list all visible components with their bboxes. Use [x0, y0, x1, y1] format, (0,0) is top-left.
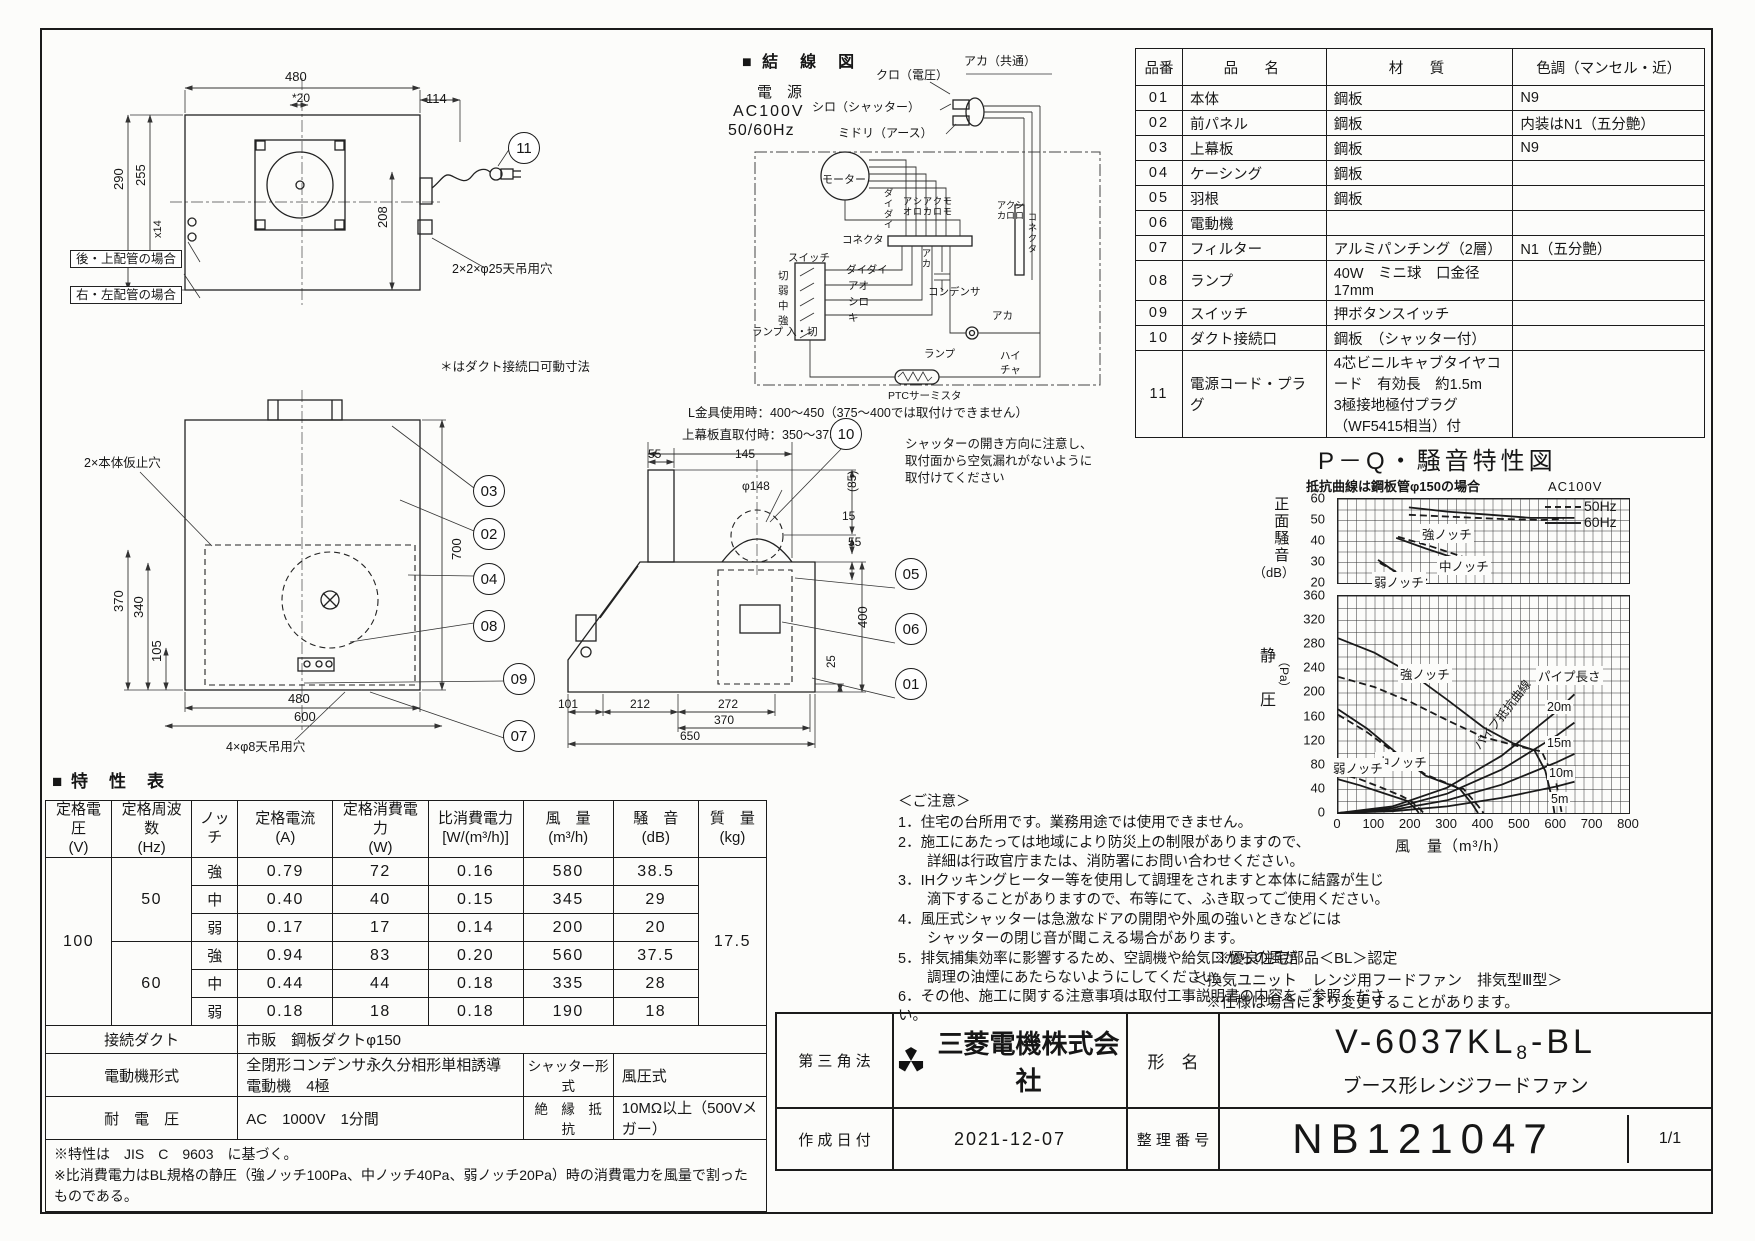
ann-pipe-length: パイプ長さ: [1536, 666, 1603, 685]
part-color: [1513, 161, 1705, 186]
part-no: 09: [1136, 301, 1183, 326]
parts-row: 09 スイッチ 押ボタンスイッチ: [1136, 301, 1705, 326]
dim-340: 340: [132, 596, 147, 618]
withstand-value: AC 1000V 1分間: [238, 1097, 523, 1140]
pq-plot: [1337, 595, 1630, 814]
parts-row: 06 電動機: [1136, 211, 1705, 236]
title-block: 第 三 角 法 三菱電機株式会社 形 名 V-6037KL8-BL ブース形レン…: [775, 1012, 1713, 1171]
callout-09: 09: [503, 663, 535, 695]
dim-114: 114: [426, 92, 447, 107]
spec-h-notch: ノッチ: [192, 801, 238, 858]
spec-cell: 83: [333, 942, 428, 970]
part-material: 鋼板: [1326, 136, 1513, 161]
model-suffix: -BL: [1531, 1023, 1596, 1061]
spec-h-voltage: 定格電圧 (V): [46, 801, 112, 858]
duct-value: 市販 鋼板ダクトφ150: [238, 1026, 767, 1054]
dim-85: (85): [846, 471, 860, 492]
dim-400: 400: [856, 606, 871, 628]
wire-ao-label: アオ: [848, 278, 869, 293]
part-name: ケーシング: [1182, 161, 1326, 186]
dim-25: 25: [826, 655, 839, 668]
wire-kuro-label: クロ（電圧）: [876, 66, 948, 83]
note-item: 2．施工にあたっては地域により防災上の制限がありますので、 詳細は行政官庁または…: [898, 834, 1398, 872]
part-no: 10: [1136, 326, 1183, 351]
part-material: 押ボタンスイッチ: [1326, 301, 1513, 326]
duct-label: 接続ダクト: [46, 1026, 238, 1054]
y-tick: 60: [1311, 491, 1325, 506]
parts-row: 01 本体 鋼板 N9: [1136, 86, 1705, 111]
wire-pair-shiro: シロ: [911, 196, 921, 217]
pq-y-ticks: 36032028024020016012080400: [1288, 595, 1329, 812]
wire-ki-label: キ: [848, 310, 859, 325]
callout-01: 01: [895, 668, 927, 700]
spec-cell: 0.15: [428, 886, 523, 914]
chart-title: P－Q・騒音特性図: [1318, 448, 1557, 476]
dim-480-front: 480: [288, 692, 310, 707]
spec-cell: 0.17: [238, 914, 333, 942]
x-tick: 800: [1617, 816, 1639, 831]
spec-footnotes: ※特性は JIS C 9603 に基づく。 ※比消費電力はBL規格の静圧（強ノッ…: [46, 1140, 767, 1212]
spec-cell: 0.94: [238, 942, 333, 970]
insulation-value: 10MΩ以上（500Vメガー）: [613, 1097, 766, 1140]
spec-cell: 弱: [192, 914, 238, 942]
label-rear-top-piping: 後・上配管の場合: [70, 250, 182, 268]
part-no: 11: [1136, 351, 1183, 438]
spec-voltage: 100: [46, 858, 112, 1026]
wire-aka-common-label: アカ（共通）: [964, 52, 1036, 69]
parts-row: 10 ダクト接続口 鋼板 （シャッター付）: [1136, 326, 1705, 351]
date-value: 2021-12-07: [893, 1108, 1127, 1170]
wire-aka-right: アカ: [992, 308, 1013, 323]
lamp-label: ランプ: [924, 346, 955, 361]
withstand-label: 耐 電 圧: [46, 1097, 238, 1140]
x-tick: 700: [1581, 816, 1603, 831]
part-material: 鋼板: [1326, 161, 1513, 186]
bl-line2: ＜換気ユニット レンジ用フードファン 排気型Ⅲ型＞: [1192, 970, 1672, 992]
pressure-axis-label-1: 静: [1260, 648, 1276, 666]
dim-55-top: 55: [648, 448, 661, 462]
spec-footnotes-row: ※特性は JIS C 9603 に基づく。 ※比消費電力はBL規格の静圧（強ノッ…: [46, 1140, 767, 1212]
pressure-axis-label-2: 圧: [1260, 692, 1276, 710]
spec-table-title: ■ 特 性 表: [52, 772, 166, 792]
company-cell: 三菱電機株式会社: [893, 1013, 1127, 1108]
condenser-label: コンデンサ: [928, 284, 981, 299]
spec-cell: 72: [333, 858, 428, 886]
dim-600: 600: [294, 710, 316, 725]
motor-type-label: 電動機形式: [46, 1054, 238, 1097]
part-no: 03: [1136, 136, 1183, 161]
drawing-sheet: 480 *20 114 290 255 x14 208 後・上配管の場合 右・左…: [0, 0, 1755, 1241]
x-tick: 200: [1399, 816, 1421, 831]
y-tick: 80: [1311, 756, 1325, 771]
part-name: 本体: [1182, 86, 1326, 111]
spec-cell: 37.5: [613, 942, 698, 970]
parts-col-color: 色調（マンセル・近）: [1513, 49, 1705, 86]
wire-aka-vertical: アカ: [920, 248, 930, 269]
note-item: 3．IHクッキングヒーター等を使用して調理をされますと本体に結露が生じ 滴下する…: [898, 872, 1398, 910]
callout-06: 06: [895, 613, 927, 645]
spec-cell: 580: [523, 858, 613, 886]
spec-withstand-row: 耐 電 圧 AC 1000V 1分間 絶 縁 抵 抗 10MΩ以上（500Vメガ…: [46, 1097, 767, 1140]
y-tick: 40: [1311, 533, 1325, 548]
page-number: 1/1: [1629, 1115, 1711, 1163]
spec-cell: 0.18: [238, 998, 333, 1026]
spec-h-mass: 質 量 (kg): [698, 801, 766, 858]
ann-strong-notch-noise: 強ノッチ: [1420, 524, 1474, 543]
wire-hai: ハイ: [1000, 348, 1021, 363]
model-cell: V-6037KL8-BL ブース形レンジフードファン: [1219, 1013, 1712, 1108]
part-color: [1513, 351, 1705, 438]
label-right-left-piping: 右・左配管の場合: [70, 286, 182, 304]
dim-212: 212: [630, 698, 650, 712]
wire-shiro-label: シロ: [848, 294, 869, 309]
spec-row: 100 50 強 0.79 72 0.16 580 38.5 17.5: [46, 858, 767, 886]
dim-101: 101: [558, 698, 578, 712]
part-material: 4芯ビニルキャブタイヤコード 有効長 約1.5m 3極接地極付プラグ（WF541…: [1326, 351, 1513, 438]
model-description: ブース形レンジフードファン: [1221, 1071, 1710, 1098]
spec-cell: 335: [523, 970, 613, 998]
x-tick: 500: [1508, 816, 1530, 831]
y-tick: 240: [1303, 660, 1325, 675]
dim-105: 105: [150, 640, 165, 662]
spec-h-noise: 騒 音 (dB): [613, 801, 698, 858]
parts-row: 04 ケーシング 鋼板: [1136, 161, 1705, 186]
spec-cell: 345: [523, 886, 613, 914]
model-prefix: V-6037KL: [1335, 1023, 1516, 1061]
dim-x14: x14: [152, 220, 165, 238]
model-label: 形 名: [1127, 1013, 1219, 1108]
part-no: 08: [1136, 261, 1183, 301]
part-color: [1513, 261, 1705, 301]
spec-cell: 40: [333, 886, 428, 914]
wire-cha: チャ: [1000, 362, 1021, 377]
spec-cell: 中: [192, 970, 238, 998]
callout-07: 07: [503, 720, 535, 752]
part-no: 07: [1136, 236, 1183, 261]
wire-pair-kuro: クロ: [931, 196, 941, 217]
spec-row: 60 強 0.94 83 0.20 560 37.5: [46, 942, 767, 970]
part-name: 羽根: [1182, 186, 1326, 211]
noise-axis-label: 正面騒音: [1272, 496, 1289, 564]
spec-cell: 中: [192, 886, 238, 914]
dim-55-right: 55: [848, 536, 861, 550]
spec-cell: 0.44: [238, 970, 333, 998]
y-tick: 360: [1303, 588, 1325, 603]
spec-cell: 強: [192, 942, 238, 970]
wire-daidai-label: ダイダイ: [846, 262, 888, 277]
dim-208: 208: [376, 206, 391, 228]
spec-cell: 0.14: [428, 914, 523, 942]
callout-04: 04: [473, 563, 505, 595]
views-linework: [40, 30, 1140, 775]
part-material: 鋼板 （シャッター付）: [1326, 326, 1513, 351]
spec-cell: 0.40: [238, 886, 333, 914]
chart-subnote: 抵抗曲線は鋼板管φ150の場合: [1306, 480, 1480, 495]
spec-mass: 17.5: [698, 858, 766, 1026]
switch-label: スイッチ: [788, 250, 830, 265]
x-tick: 400: [1472, 816, 1494, 831]
parts-row: 08 ランプ 40W ミニ球 口金径17mm: [1136, 261, 1705, 301]
note-shutter: シャッターの開き方向に注意し、 取付面から空気漏れがないように 取付けてください: [905, 436, 1093, 487]
spec-table: 定格電圧 (V) 定格周波数 (Hz) ノッチ 定格電流 (A) 定格消費電力 …: [45, 800, 767, 1212]
spec-cell: 190: [523, 998, 613, 1026]
callout-08: 08: [473, 610, 505, 642]
part-color: 内装はN1（五分艶）: [1513, 111, 1705, 136]
ann-pipe-5m: 5m: [1549, 792, 1570, 806]
label-ceiling-holes-front: 4×φ8天吊用穴: [226, 740, 305, 754]
spec-h-freq: 定格周波数 (Hz): [112, 801, 192, 858]
spec-cell: 28: [613, 970, 698, 998]
y-tick: 30: [1311, 554, 1325, 569]
spec-cell: 弱: [192, 998, 238, 1026]
parts-col-no: 品番: [1136, 49, 1183, 86]
part-no: 06: [1136, 211, 1183, 236]
dim-700: 700: [450, 538, 465, 560]
spec-cell: 200: [523, 914, 613, 942]
ann-weak-notch-pq: 弱ノッチ: [1331, 758, 1385, 777]
part-material: アルミパンチング（2層）: [1326, 236, 1513, 261]
wire-daidai-vertical: ダイダイ: [882, 188, 892, 230]
model-sub: 8: [1516, 1043, 1531, 1064]
date-label: 作 成 日 付: [776, 1108, 893, 1170]
spec-cell: 38.5: [613, 858, 698, 886]
part-color: [1513, 186, 1705, 211]
chart-voltage: AC100V: [1548, 480, 1602, 495]
serial-number: NB121047: [1220, 1115, 1629, 1163]
dim-370-front: 370: [112, 590, 127, 612]
part-name: 上幕板: [1182, 136, 1326, 161]
y-tick: 50: [1311, 512, 1325, 527]
dim-272: 272: [718, 698, 738, 712]
x-tick: 300: [1435, 816, 1457, 831]
y-tick: 320: [1303, 612, 1325, 627]
legend-solid-sample: [1545, 522, 1581, 524]
x-tick: 600: [1544, 816, 1566, 831]
spec-cell: 0.18: [428, 998, 523, 1026]
note-l-bracket: L金具使用時：400～450（375～400では取付けできません）: [688, 406, 1028, 420]
callout-03: 03: [473, 475, 505, 507]
wiring-power: 電 源: [757, 84, 802, 101]
wire-midori-label: ミドリ（アース）: [838, 124, 933, 141]
spec-cell: 29: [613, 886, 698, 914]
note-duct-movable: ＊はダクト接続口可動寸法: [440, 360, 590, 374]
flow-axis-label: 風 量（m³/h）: [1395, 838, 1509, 855]
wiring-title: ■ 結 線 図: [742, 54, 857, 72]
spec-cell: 18: [613, 998, 698, 1026]
callout-10: 10: [830, 418, 862, 450]
part-material: [1326, 211, 1513, 236]
front-view: [124, 390, 504, 740]
part-color: [1513, 326, 1705, 351]
callout-02: 02: [473, 518, 505, 550]
spec-freq-50: 50: [112, 858, 192, 942]
label-tack-holes: 2×本体仮止穴: [84, 456, 161, 470]
ann-weak-notch-noise: 弱ノッチ: [1372, 572, 1426, 591]
dim-star20: *20: [292, 92, 310, 106]
part-no: 05: [1136, 186, 1183, 211]
note-top-panel: 上幕板直取付時：350～375: [682, 428, 836, 442]
spec-cell: 18: [333, 998, 428, 1026]
spec-cell: 44: [333, 970, 428, 998]
part-color: N9: [1513, 86, 1705, 111]
part-material: 40W ミニ球 口金径17mm: [1326, 261, 1513, 301]
serial-cell: NB121047 1/1: [1219, 1108, 1712, 1170]
part-name: 電動機: [1182, 211, 1326, 236]
legend-50hz: 50Hz: [1545, 498, 1617, 514]
noise-y-ticks: 6050403020: [1295, 498, 1329, 582]
dim-480-top: 480: [285, 70, 307, 85]
dim-15: 15: [842, 510, 855, 524]
serial-label: 整 理 番 号: [1127, 1108, 1219, 1170]
parts-row: 03 上幕板 鋼板 N9: [1136, 136, 1705, 161]
insulation-label: 絶 縁 抵 抗: [523, 1097, 613, 1140]
y-tick: 120: [1303, 732, 1325, 747]
parts-table: 品番 品 名 材 質 色調（マンセル・近） 01 本体 鋼板 N9 02 前パネ…: [1135, 48, 1705, 438]
spec-cell: 560: [523, 942, 613, 970]
part-name: ランプ: [1182, 261, 1326, 301]
spec-cell: 0.20: [428, 942, 523, 970]
lamp-switch-label: ランプ 入・切: [752, 326, 818, 340]
part-material: 鋼板: [1326, 111, 1513, 136]
shutter-type-value: 風圧式: [613, 1054, 766, 1097]
part-color: [1513, 211, 1705, 236]
noise-axis-unit: （dB）: [1253, 566, 1295, 581]
wire-right-shiro: シロ: [1013, 200, 1023, 221]
part-name: ダクト接続口: [1182, 326, 1326, 351]
parts-row: 11 電源コード・プラグ 4芯ビニルキャブタイヤコード 有効長 約1.5m 3極…: [1136, 351, 1705, 438]
part-color: N9: [1513, 136, 1705, 161]
spec-cell: 20: [613, 914, 698, 942]
y-tick: 200: [1303, 684, 1325, 699]
motor-type-value: 全閉形コンデンサ永久分相形単相誘導電動機 4極: [238, 1054, 523, 1097]
label-ceiling-holes-top: 2×2×φ25天吊用穴: [452, 262, 553, 276]
notes-header: ＜ご注意＞: [898, 793, 1398, 812]
callout-05: 05: [895, 558, 927, 590]
connector-right-label: コネクタ: [1026, 212, 1036, 254]
ann-mid-notch-noise: 中ノッチ: [1437, 556, 1491, 575]
spec-freq-60: 60: [112, 942, 192, 1026]
sw-off: 切: [778, 268, 789, 283]
part-no: 01: [1136, 86, 1183, 111]
shutter-type-label: シャッター形式: [523, 1054, 613, 1097]
connector-label: コネクタ: [842, 232, 884, 247]
spec-h-power: 定格消費電力 (W): [333, 801, 428, 858]
projection-method: 第 三 角 法: [776, 1013, 893, 1108]
parts-row: 07 フィルター アルミパンチング（2層） N1（五分艶）: [1136, 236, 1705, 261]
part-name: 前パネル: [1182, 111, 1326, 136]
part-name: 電源コード・プラグ: [1182, 351, 1326, 438]
ann-pipe-10m: 10m: [1547, 766, 1575, 780]
spec-h-current: 定格電流 (A): [238, 801, 333, 858]
spec-cell: 17: [333, 914, 428, 942]
dim-255: 255: [134, 164, 149, 186]
legend-dashed-sample: [1545, 506, 1581, 508]
wire-pair-momo: モモ: [941, 196, 951, 217]
dim-650: 650: [680, 730, 700, 744]
dim-370-side: 370: [714, 714, 734, 728]
bl-certification: ※優良住宅部品＜BL＞認定 ＜換気ユニット レンジ用フードファン 排気型Ⅲ型＞ …: [1192, 948, 1672, 1013]
spec-h-specific: 比消費電力 [W/(m³/h)]: [428, 801, 523, 858]
part-name: スイッチ: [1182, 301, 1326, 326]
spec-h-flow: 風 量 (m³/h): [523, 801, 613, 858]
part-name: フィルター: [1182, 236, 1326, 261]
spec-cell: 強: [192, 858, 238, 886]
ann-strong-notch-pq: 強ノッチ: [1398, 664, 1452, 683]
note-item: 1．住宅の台所用です。業務用途では使用できません。: [898, 814, 1398, 833]
spec-cell: 0.16: [428, 858, 523, 886]
ptc-label: PTCサーミスタ: [888, 388, 962, 403]
parts-col-material: 材 質: [1326, 49, 1513, 86]
y-tick: 160: [1303, 708, 1325, 723]
spec-cell: 0.79: [238, 858, 333, 886]
spec-duct-row: 接続ダクト 市販 鋼板ダクトφ150: [46, 1026, 767, 1054]
y-tick: 280: [1303, 636, 1325, 651]
wire-pair-aka: アカ: [921, 196, 931, 217]
part-color: [1513, 301, 1705, 326]
callout-11: 11: [508, 132, 540, 164]
sw-weak: 弱: [778, 283, 789, 298]
legend-60hz: 60Hz: [1545, 514, 1617, 530]
ann-pipe-15m: 15m: [1545, 736, 1573, 750]
part-material: 鋼板: [1326, 186, 1513, 211]
motor-label: モーター: [822, 171, 866, 187]
part-color: N1（五分艶）: [1513, 236, 1705, 261]
note-item: 4．風圧式シャッターは急激なドアの開閉や外風の強いときなどには シャッターの閉じ…: [898, 911, 1398, 949]
mitsubishi-logo-icon: [895, 1046, 927, 1076]
parts-row: 02 前パネル 鋼板 内装はN1（五分艶）: [1136, 111, 1705, 136]
ann-pipe-20m: 20m: [1545, 700, 1573, 714]
part-no: 04: [1136, 161, 1183, 186]
wiring-voltage: AC100V: [733, 103, 805, 121]
part-material: 鋼板: [1326, 86, 1513, 111]
pressure-axis-unit: （Pa）: [1276, 655, 1290, 694]
parts-col-name: 品 名: [1182, 49, 1326, 86]
wire-shiro-shutter-label: シロ（シャッター）: [812, 98, 920, 115]
dim-145: 145: [735, 448, 755, 462]
company-name: 三菱電機株式会社: [932, 1024, 1125, 1098]
part-no: 02: [1136, 111, 1183, 136]
parts-row: 05 羽根 鋼板: [1136, 186, 1705, 211]
spec-motor-row: 電動機形式 全閉形コンデンサ永久分相形単相誘導電動機 4極 シャッター形式 風圧…: [46, 1054, 767, 1097]
spec-cell: 0.18: [428, 970, 523, 998]
bl-line3: ※仕様は場合により変更することがあります。: [1192, 992, 1672, 1014]
bl-line1: ※優良住宅部品＜BL＞認定: [1192, 948, 1672, 970]
dim-290: 290: [112, 168, 127, 190]
wire-pair-ao: アオ: [901, 196, 911, 217]
wiring-freq: 50/60Hz: [728, 122, 795, 140]
dim-phi148: φ148: [742, 480, 770, 494]
sw-mid: 中: [778, 298, 789, 313]
